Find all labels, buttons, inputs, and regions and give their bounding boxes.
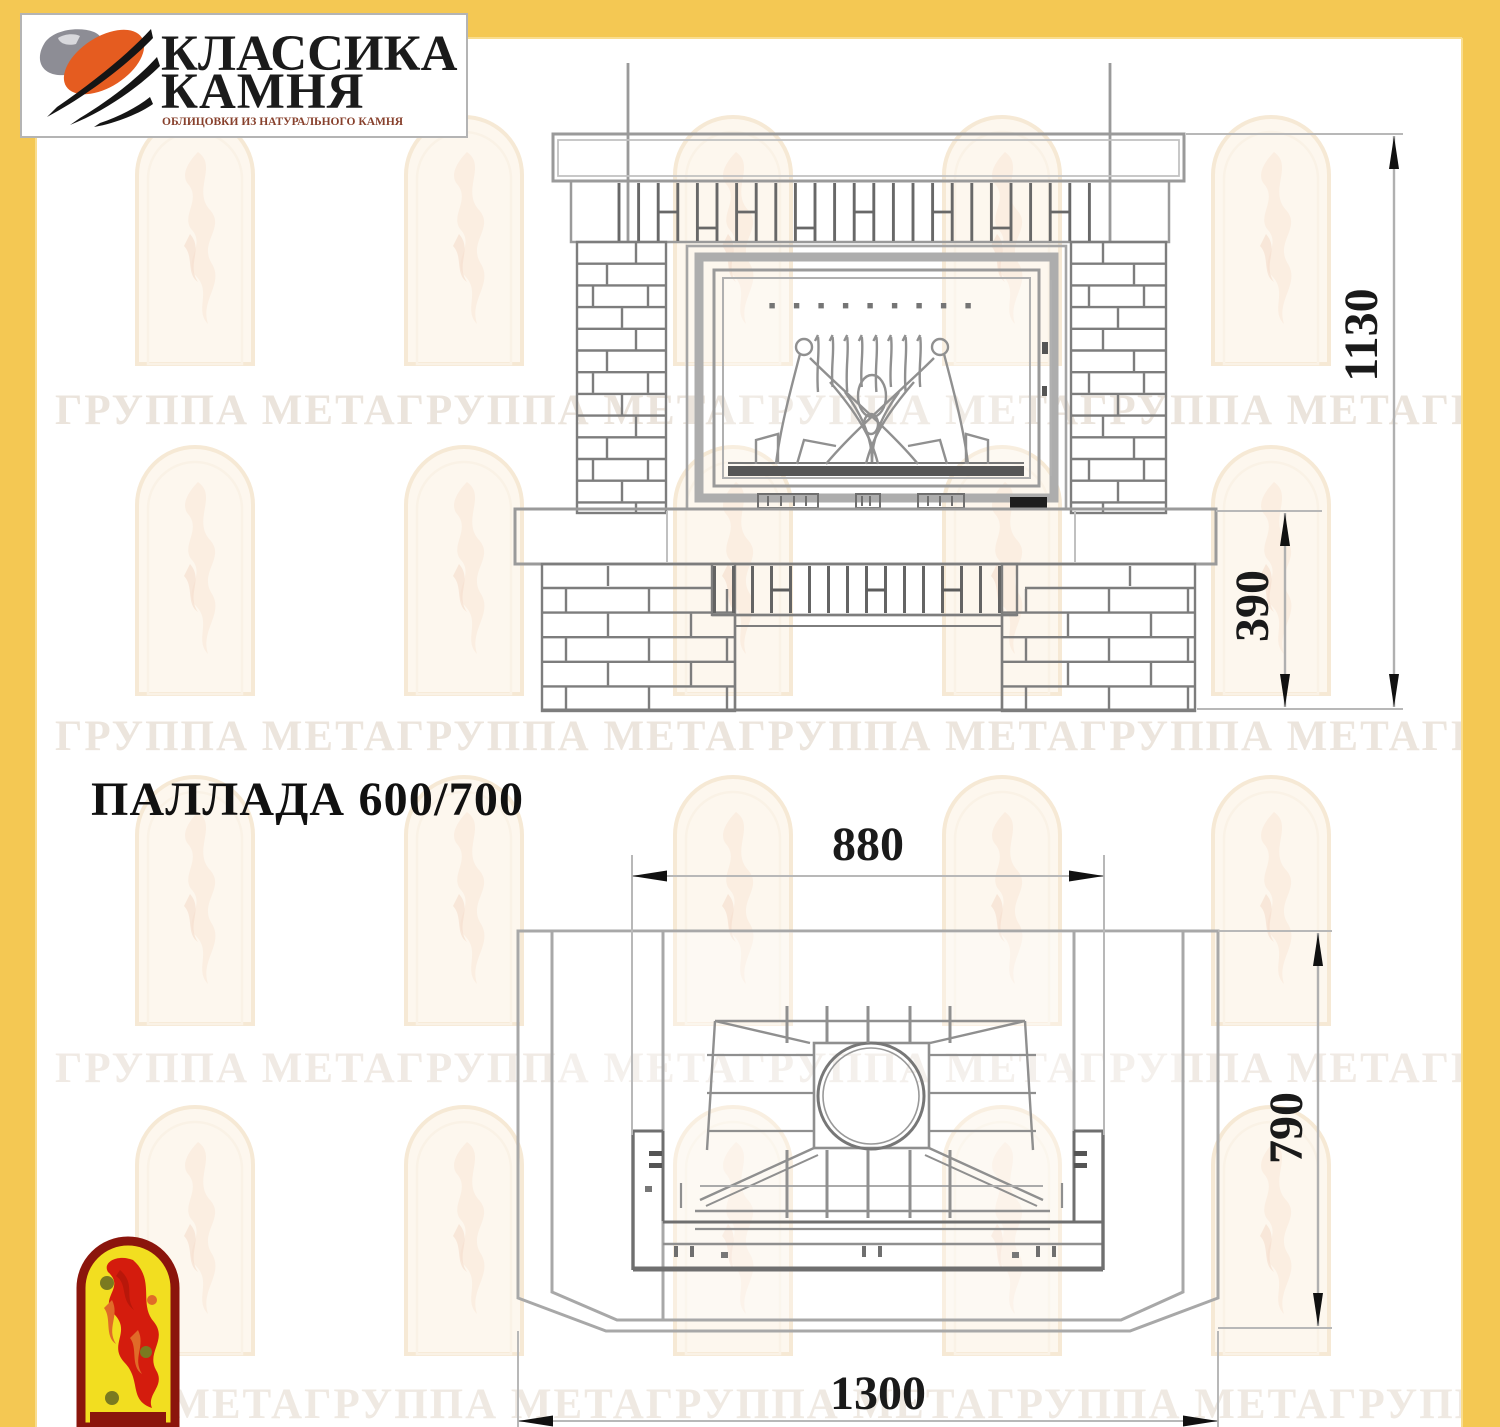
- svg-text:ОБЛИЦОВКИ ИЗ НАТУРАЛЬНОГО КАМН: ОБЛИЦОВКИ ИЗ НАТУРАЛЬНОГО КАМНЯ: [162, 116, 404, 128]
- svg-text:1130: 1130: [1335, 288, 1388, 381]
- svg-text:390: 390: [1226, 570, 1279, 642]
- svg-text:ГРУППА МЕТАГРУППА МЕТАГРУППА М: ГРУППА МЕТАГРУППА МЕТАГРУППА МЕТАГРУППА …: [55, 713, 1500, 760]
- svg-text:790: 790: [1260, 1092, 1313, 1164]
- svg-text:880: 880: [832, 818, 904, 871]
- svg-text:КАМНЯ: КАМНЯ: [161, 64, 364, 120]
- svg-text:ПАЛЛАДА 600/700: ПАЛЛАДА 600/700: [91, 773, 524, 826]
- svg-text:1300: 1300: [830, 1367, 926, 1420]
